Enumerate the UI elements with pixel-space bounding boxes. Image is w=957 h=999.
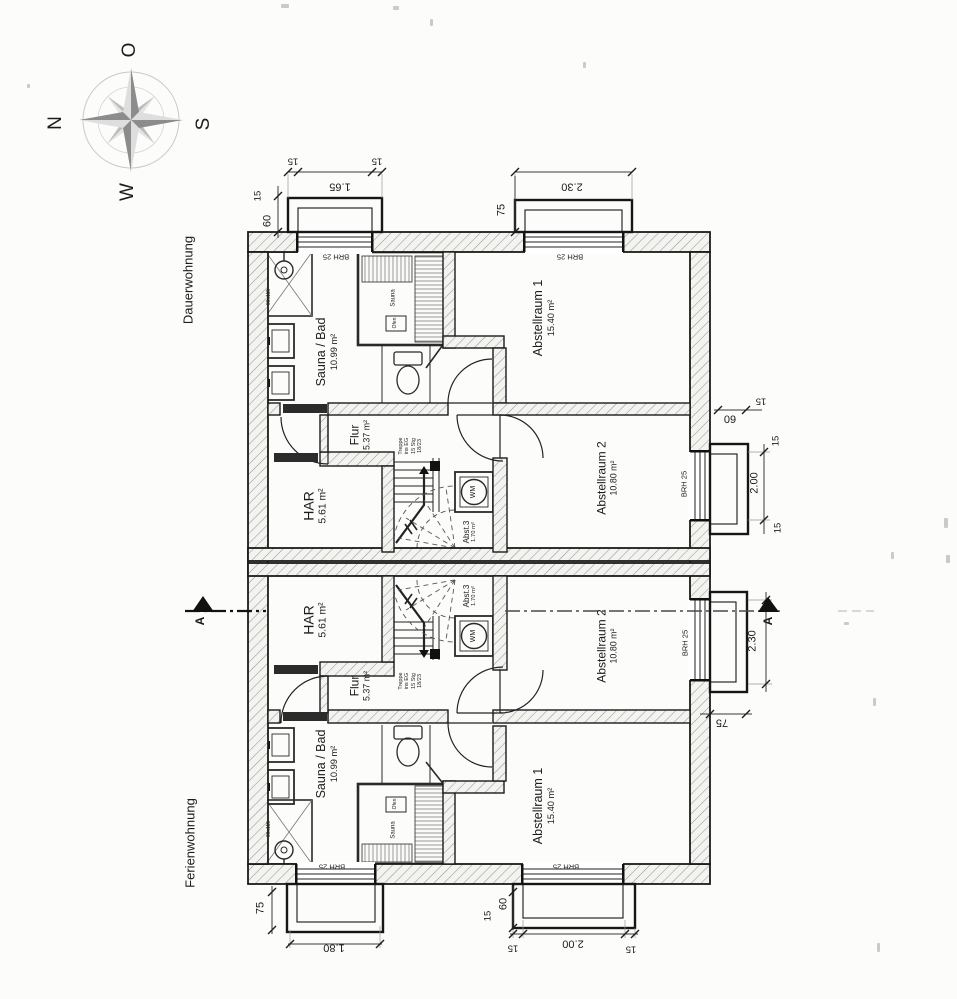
scan-artifact (891, 552, 894, 559)
dim-label: 1.65 (329, 180, 350, 193)
section-line (185, 596, 874, 612)
room-label-abstellraum2-bottom: Abstellraum 2 10.80 m² (595, 609, 620, 682)
room-area: 5.37 m² (362, 420, 372, 450)
room-label-abst3-top: Abst.3 1.70 m² (462, 521, 478, 544)
dim-label: 15 (756, 395, 767, 406)
room-name: Abstellraum 2 (595, 441, 609, 514)
sill-height-label: BRH 25 (323, 252, 349, 261)
window-sill-bottom-right (513, 884, 635, 928)
dim-label: 15 (372, 155, 383, 166)
dim-label: 1.80 (323, 941, 344, 954)
room-name: Abstellraum 1 (531, 280, 546, 356)
room-label-sauna-bad-top: Sauna / Bad 10.99 m² (314, 318, 340, 387)
compass-label-west: W (117, 183, 139, 201)
room-area: 15.40 m² (546, 768, 557, 844)
door-swing-abstellraum2-bottom (500, 670, 543, 713)
party-wall-leaf (248, 548, 710, 561)
floorplan-page: N O S W Dauerwohnung Ferienwohnung Sauna… (0, 0, 957, 999)
newel-post (430, 461, 440, 471)
dim-label: 15 (482, 911, 493, 922)
sauna-cabin-bottom (358, 762, 447, 864)
scan-artifact (430, 19, 433, 26)
compass-rose (79, 68, 183, 172)
room-area: 5.61 m² (317, 602, 329, 637)
party-wall-leaf (248, 563, 710, 576)
shower-size-label-bottom: 90x115 (267, 821, 273, 837)
floorplan-drawing (0, 0, 957, 999)
washing-machine-label-bottom: WM (470, 630, 478, 642)
door-swing-stair-top (457, 415, 503, 461)
room-label-abstellraum2-top: Abstellraum 2 10.80 m² (595, 441, 620, 514)
sill-height-label: BRH 25 (557, 252, 583, 261)
unit-label-top: Dauerwohnung (180, 236, 195, 324)
sauna-label-bottom: Sauna (390, 821, 397, 838)
room-name: Sauna / Bad (314, 318, 329, 387)
staircase-top-unit (393, 458, 455, 548)
dim-label: 2.30 (747, 630, 760, 651)
door-swing-stair-bottom (457, 667, 503, 713)
washing-machine-label-top: WM (470, 486, 478, 498)
room-area: 1.70 m² (471, 521, 478, 544)
section-label-left: A (193, 617, 207, 626)
scan-artifact (393, 6, 399, 10)
room-label-abstellraum1-bottom: Abstellraum 1 15.40 m² (531, 768, 557, 844)
stair-note-line: ins EG (405, 437, 411, 454)
room-area: 5.37 m² (362, 671, 372, 701)
room-area: 1.70 m² (471, 585, 478, 608)
sill-height-label: BRH 25 (553, 862, 579, 871)
room-label-flur-top: Flur 5.37 m² (348, 420, 373, 450)
room-area: 5.61 m² (317, 488, 329, 523)
toilet-top (382, 345, 430, 403)
scan-artifact (27, 84, 30, 88)
dim-label: 60 (262, 215, 275, 227)
stair-note-line: ins EG (405, 672, 411, 689)
room-name: Abst.3 (462, 521, 471, 544)
room-area: 10.80 m² (609, 609, 619, 682)
room-name: Abst.3 (462, 585, 471, 608)
window-sill-bottom-left (287, 884, 383, 932)
dim-label: 60 (724, 412, 736, 425)
dim-label: 75 (716, 716, 728, 729)
room-area: 10.99 m² (329, 730, 340, 799)
dim-label: 60 (498, 898, 511, 910)
dim-label: 75 (255, 902, 268, 914)
door-swing-abstellraum1-bottom (448, 723, 492, 767)
room-label-har-bottom: HAR 5.61 m² (301, 602, 330, 637)
window-sill-right-upper (710, 444, 748, 534)
newel-post (430, 649, 440, 659)
dim-label: 15 (252, 191, 263, 202)
scan-artifact (281, 4, 289, 8)
room-name: HAR (301, 602, 318, 637)
room-name: Flur (348, 420, 362, 450)
sill-height-label: BRH 25 (319, 862, 345, 871)
scan-artifact (873, 698, 876, 706)
scan-artifact (877, 943, 880, 952)
room-area: 15.40 m² (546, 280, 557, 356)
interior-walls-bottom-unit (268, 576, 690, 864)
window-sill-right-lower (710, 592, 747, 692)
room-area: 10.99 m² (329, 318, 340, 387)
section-arrow-left (192, 596, 214, 612)
stove-label-top: Ofen (393, 318, 399, 329)
dim-label: 15 (772, 523, 783, 534)
dim-label: 15 (508, 942, 519, 953)
dim-label: 15 (288, 155, 299, 166)
door-swing-abstellraum2-top (500, 415, 543, 458)
room-label-abst3-bottom: Abst.3 1.70 m² (462, 585, 478, 608)
compass-label-south: S (193, 118, 215, 131)
stair-note-line: 18/23 (417, 672, 423, 689)
room-label-sauna-bad-bottom: Sauna / Bad 10.99 m² (314, 730, 340, 799)
shower-tray-top (266, 252, 312, 316)
dim-label: 75 (496, 204, 509, 216)
unit-label-bottom: Ferienwohnung (182, 798, 197, 888)
sill-height-label: BRH 25 (681, 471, 690, 497)
room-name: Sauna / Bad (314, 730, 329, 799)
compass-label-east: O (119, 43, 141, 58)
room-name: HAR (301, 488, 318, 523)
section-arrow-right (758, 597, 779, 612)
sauna-cabin-top (358, 252, 447, 368)
sill-height-label: BRH 25 (682, 630, 691, 656)
scan-artifact (583, 62, 586, 68)
room-label-flur-bottom: Flur 5.37 m² (348, 671, 373, 701)
dim-label: 2.30 (561, 180, 582, 193)
compass-label-north: N (45, 116, 67, 130)
scan-artifact (944, 518, 948, 528)
stair-note-top: Treppe ins EG 15 Stg 18/23 (398, 437, 424, 454)
scan-artifact (946, 555, 950, 563)
scan-artifact (844, 622, 849, 625)
room-area: 10.80 m² (609, 441, 619, 514)
sauna-label-top: Sauna (390, 289, 397, 306)
room-name: Flur (348, 671, 362, 701)
room-label-abstellraum1-top: Abstellraum 1 15.40 m² (531, 280, 557, 356)
staircase-bottom-unit (393, 580, 455, 660)
compass-main-points (79, 68, 183, 172)
window-sill-top-left (288, 198, 382, 232)
dim-label: 2.00 (749, 472, 762, 493)
stove-label-bottom: Ofen (393, 799, 399, 810)
section-label-right: A (761, 617, 775, 626)
dim-label: 2.00 (562, 937, 583, 950)
stair-note-line: 18/23 (417, 437, 423, 454)
dim-label: 15 (626, 943, 637, 954)
toilet-bottom (382, 725, 430, 784)
stair-note-bottom: Treppe ins EG 15 Stg 18/23 (398, 672, 424, 689)
room-label-har-top: HAR 5.61 m² (301, 488, 330, 523)
dim-label: 15 (770, 436, 781, 447)
room-name: Abstellraum 1 (531, 768, 546, 844)
room-name: Abstellraum 2 (595, 609, 609, 682)
door-swing-abstellraum1-top (448, 359, 492, 403)
shower-size-label-top: 90x115 (267, 289, 273, 305)
window-sill-top-right (515, 200, 632, 232)
